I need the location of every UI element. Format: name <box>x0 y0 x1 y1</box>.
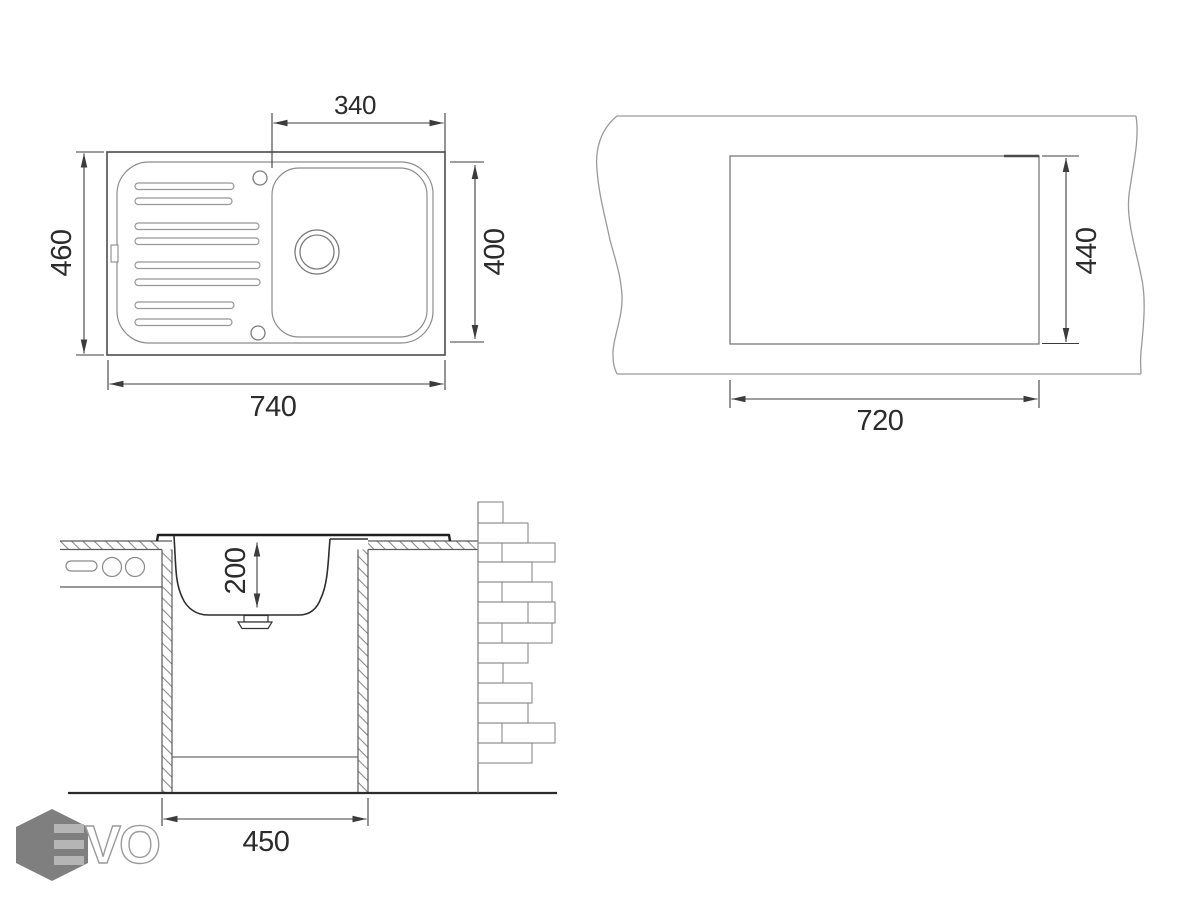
dim-label-cabinet-width: 450 <box>243 826 290 858</box>
cutout-rectangle <box>730 156 1039 344</box>
dim-label-overall-depth: 460 <box>46 230 78 277</box>
page-background <box>0 0 1200 900</box>
dim-label-bowl-depth: 400 <box>479 229 511 276</box>
countertop-left-hatch <box>60 541 162 550</box>
dim-label-bowl-width: 340 <box>334 90 376 120</box>
cabinet-wall-left-hatch <box>162 550 172 794</box>
evo-logo: VO <box>16 809 159 881</box>
logo-letters: VO <box>85 815 159 875</box>
evo-e-bars-icon <box>54 824 84 865</box>
dim-label-cutout-width: 720 <box>857 405 904 437</box>
rim-notch <box>111 245 118 262</box>
countertop-right-hatch <box>368 541 478 550</box>
tap-hole-top <box>253 171 267 185</box>
drain-outer-circle <box>295 230 339 274</box>
dim-label-cutout-depth: 440 <box>1071 228 1103 275</box>
dim-label-bowl-height: 200 <box>220 548 252 595</box>
sink-technical-drawing: 340 460 400 740 <box>0 0 1200 900</box>
dim-label-overall-width: 740 <box>250 391 297 423</box>
tap-hole-bottom <box>251 326 265 340</box>
sink-technical-drawing-page: 340 460 400 740 <box>0 0 1200 900</box>
cabinet-wall-right-hatch <box>358 550 368 794</box>
